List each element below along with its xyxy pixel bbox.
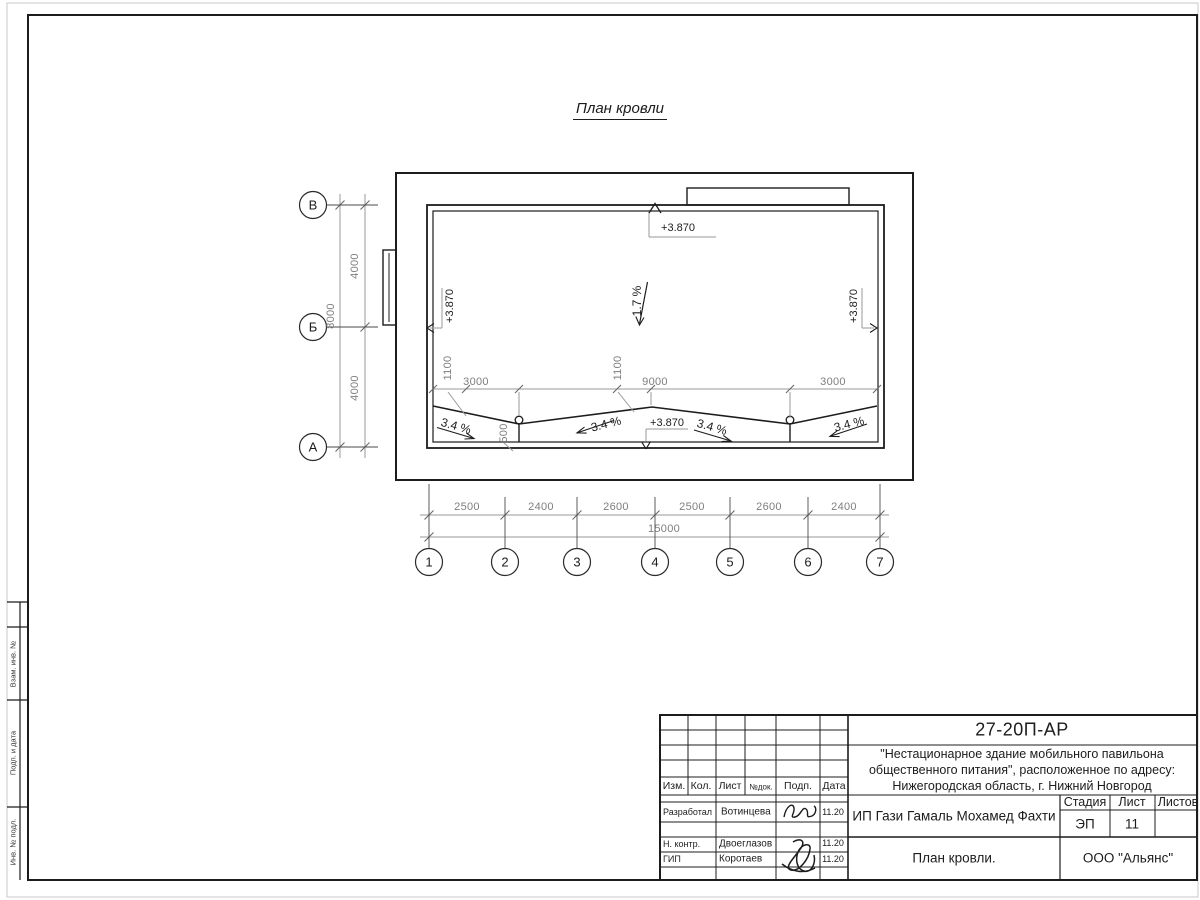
grid-col-label: 4: [651, 555, 658, 570]
grid-col-label: 1: [425, 555, 432, 570]
grid-col-label: 3: [573, 555, 580, 570]
sheets-header: Листов: [1158, 795, 1199, 809]
tb-header-col: Кол.: [691, 780, 712, 792]
dim-label: 1100: [442, 356, 454, 381]
dim-label: 2500: [679, 501, 705, 513]
grid-row-label: А: [309, 440, 318, 455]
signoff-role: Разработал: [663, 807, 712, 817]
drawing-sheet: План кровли В Б А 1 2 3 4 5 6 7 4000 400…: [0, 0, 1200, 900]
elevation-label: +3.870: [444, 289, 456, 323]
dim-label: 2400: [528, 501, 554, 513]
grid-col-label: 6: [804, 555, 811, 570]
dim-label: 9000: [642, 376, 668, 388]
side-strip-label: Подп. и дата: [9, 731, 18, 775]
project-description-line: общественного питания", расположенное по…: [869, 763, 1175, 777]
dim-label: 2600: [603, 501, 629, 513]
dim-label: 2500: [454, 501, 480, 513]
sheet-header: Лист: [1118, 795, 1145, 809]
tb-header-col: Изм.: [663, 780, 686, 792]
tb-header-col: Подп.: [784, 780, 812, 792]
dim-label: 1100: [612, 356, 624, 381]
dim-label: 500: [498, 423, 510, 442]
elevation-label: +3.870: [661, 222, 695, 234]
dim-label: 3000: [820, 376, 846, 388]
signatures: [782, 805, 816, 871]
elevation-label: +3.870: [650, 417, 684, 429]
stage-header: Стадия: [1064, 795, 1107, 809]
dim-label: 2600: [756, 501, 782, 513]
tb-header-col: Лист: [719, 780, 742, 792]
tb-header-col: Дата: [822, 780, 845, 792]
slope-label: 1.7 %: [630, 286, 644, 317]
signoff-date: 11.20: [822, 807, 844, 817]
grid-col-label: 7: [876, 555, 883, 570]
side-strip-label: Инв. № подл.: [9, 819, 18, 866]
roof-drain: [515, 416, 523, 424]
sheet-number: 11: [1125, 817, 1139, 832]
grid-axis-lines: [327, 205, 881, 549]
signoff-name: Вотинцева: [721, 807, 771, 818]
grid-col-label: 5: [726, 555, 733, 570]
client-name: ИП Гази Гамаль Мохамед Фахти: [852, 809, 1055, 824]
page-title: План кровли: [573, 100, 667, 120]
grid-row-label: Б: [309, 320, 318, 335]
stage-value: ЭП: [1075, 817, 1094, 832]
dim-label: 4000: [349, 375, 361, 401]
signoff-name: Двоеглазов: [719, 839, 772, 850]
elevation-slope-marks: [427, 204, 877, 450]
dim-label: 8000: [325, 303, 337, 329]
dim-label: 4000: [349, 253, 361, 279]
dim-label: 3000: [463, 376, 489, 388]
dimension-ticks: [336, 201, 885, 542]
project-description-line: Нижегородская область, г. Нижний Новгоро…: [892, 779, 1151, 793]
signoff-name: Коротаев: [719, 854, 762, 865]
grid-col-label: 2: [501, 555, 508, 570]
dim-label: 2400: [831, 501, 857, 513]
side-strip-label: Взам. инв. №: [9, 641, 18, 687]
signoff-date: 11.20: [822, 838, 844, 848]
signoff-role: Н. контр.: [663, 839, 700, 849]
elevation-label: +3.870: [848, 289, 860, 323]
tb-header-col: №док.: [749, 783, 772, 792]
grid-row-label: В: [309, 198, 318, 213]
drawing-title: План кровли.: [912, 851, 995, 866]
dim-label: 15000: [648, 523, 680, 535]
signoff-role: ГИП: [663, 854, 681, 864]
company-name: ООО "Альянс": [1083, 851, 1173, 866]
project-description-line: "Нестационарное здание мобильного павиль…: [880, 747, 1163, 761]
document-number: 27-20П-АР: [975, 720, 1068, 741]
signoff-date: 11.20: [822, 854, 844, 864]
top-canopy: [687, 188, 849, 205]
signature-votintseva: [784, 805, 816, 817]
